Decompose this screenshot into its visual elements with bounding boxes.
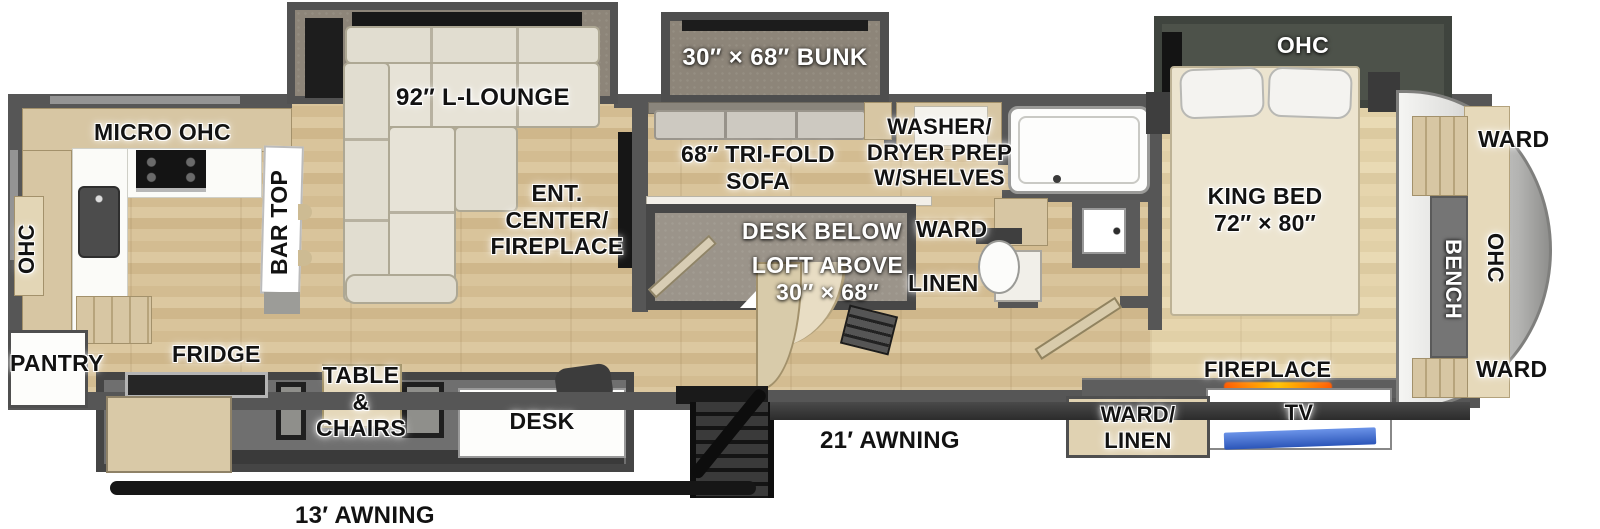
label-tv: TV bbox=[1206, 400, 1392, 426]
label-bar-top: BAR TOP bbox=[266, 156, 300, 288]
label-linen-hall: LINEN bbox=[908, 270, 979, 297]
label-bench: BENCH bbox=[1434, 206, 1466, 352]
label-ward-hall: WARD bbox=[916, 216, 987, 243]
label-trifold-line2: SOFA bbox=[648, 168, 868, 195]
lounge-sofa-back-left bbox=[343, 62, 390, 302]
bar-top-base bbox=[264, 292, 300, 314]
label-pantry: PANTRY bbox=[10, 350, 104, 377]
fridge-top bbox=[125, 372, 268, 398]
label-washer-line2: DRYER PREP bbox=[852, 140, 1027, 166]
label-ent-line3: FIREPLACE bbox=[472, 233, 642, 260]
label-desk-below: DESK BELOW bbox=[742, 218, 902, 245]
label-desk: DESK bbox=[458, 408, 626, 435]
label-awning-21: 21′ AWNING bbox=[820, 427, 960, 455]
label-ent-line1: ENT. bbox=[472, 180, 642, 207]
label-ward-front-bottom: WARD bbox=[1476, 356, 1547, 383]
kitchen-sink bbox=[78, 186, 120, 258]
label-lounge: 92″ L-LOUNGE bbox=[396, 84, 570, 112]
lounge-slide-window bbox=[305, 18, 343, 98]
shower bbox=[1008, 106, 1150, 194]
label-table-line2: & bbox=[300, 389, 422, 416]
nightstand-left bbox=[1146, 92, 1170, 134]
bunk-slide-window bbox=[682, 20, 868, 31]
label-fridge: FRIDGE bbox=[172, 341, 261, 368]
label-micro-ohc: MICRO OHC bbox=[94, 119, 231, 146]
label-king-line2: 72″ × 80″ bbox=[1185, 210, 1345, 237]
label-trifold-line1: 68″ TRI-FOLD bbox=[648, 141, 868, 168]
label-ohc-front: OHC bbox=[1470, 218, 1508, 298]
awning-13-bar bbox=[110, 481, 756, 495]
pillow-right bbox=[1267, 67, 1353, 120]
label-king-bed: KING BED 72″ × 80″ bbox=[1185, 183, 1345, 236]
label-wardlinen-line1: WARD/ bbox=[1066, 402, 1210, 428]
pillow-left bbox=[1179, 67, 1265, 120]
label-washer-line3: W/SHELVES bbox=[852, 165, 1027, 191]
label-king-line1: KING BED bbox=[1185, 183, 1345, 210]
label-table-chairs: TABLE & CHAIRS bbox=[300, 362, 422, 442]
label-ent-line2: CENTER/ bbox=[472, 207, 642, 234]
lounge-sofa-back-top bbox=[345, 26, 600, 64]
label-trifold: 68″ TRI-FOLD SOFA bbox=[648, 141, 868, 194]
label-bunk: 30″ × 68″ BUNK bbox=[661, 44, 889, 72]
label-washer-dryer: WASHER/ DRYER PREP W/SHELVES bbox=[852, 114, 1027, 191]
label-ent-center: ENT. CENTER/ FIREPLACE bbox=[472, 180, 642, 260]
label-wardlinen-line2: LINEN bbox=[1066, 428, 1210, 454]
label-loft-line1: LOFT ABOVE bbox=[745, 252, 910, 279]
label-loft-line2: 30″ × 68″ bbox=[745, 279, 910, 306]
label-ward-linen: WARD/ LINEN bbox=[1066, 402, 1210, 453]
bath-sink bbox=[1082, 208, 1126, 254]
label-awning-13: 13′ AWNING bbox=[295, 502, 435, 529]
label-table-line3: CHAIRS bbox=[300, 415, 422, 442]
rv-floorplan: MICRO OHC OHC BAR TOP PANTRY FRIDGE 92″ … bbox=[0, 0, 1600, 529]
lounge-sofa-armrest bbox=[345, 274, 458, 304]
label-table-line1: TABLE bbox=[300, 362, 422, 389]
shower-pan bbox=[1018, 116, 1140, 184]
label-loft: LOFT ABOVE 30″ × 68″ bbox=[745, 252, 910, 305]
label-washer-line1: WASHER/ bbox=[852, 114, 1027, 140]
fridge-body bbox=[106, 396, 232, 473]
label-fireplace: FIREPLACE bbox=[1204, 357, 1331, 383]
cooktop bbox=[136, 150, 206, 192]
front-ward-cabinet-bottom bbox=[1412, 358, 1468, 398]
front-ward-cabinet-top bbox=[1412, 116, 1468, 196]
trifold-sofa-cushions bbox=[654, 110, 866, 140]
window-top-rear bbox=[50, 96, 240, 104]
toilet-bowl bbox=[978, 240, 1020, 294]
label-ward-front-top: WARD bbox=[1478, 126, 1549, 153]
wall-bath-bottom-b bbox=[1120, 296, 1162, 308]
label-ohc-bedroom-slide: OHC bbox=[1154, 32, 1452, 59]
shower-drain bbox=[1053, 175, 1061, 183]
label-ohc-rear: OHC bbox=[14, 204, 44, 294]
